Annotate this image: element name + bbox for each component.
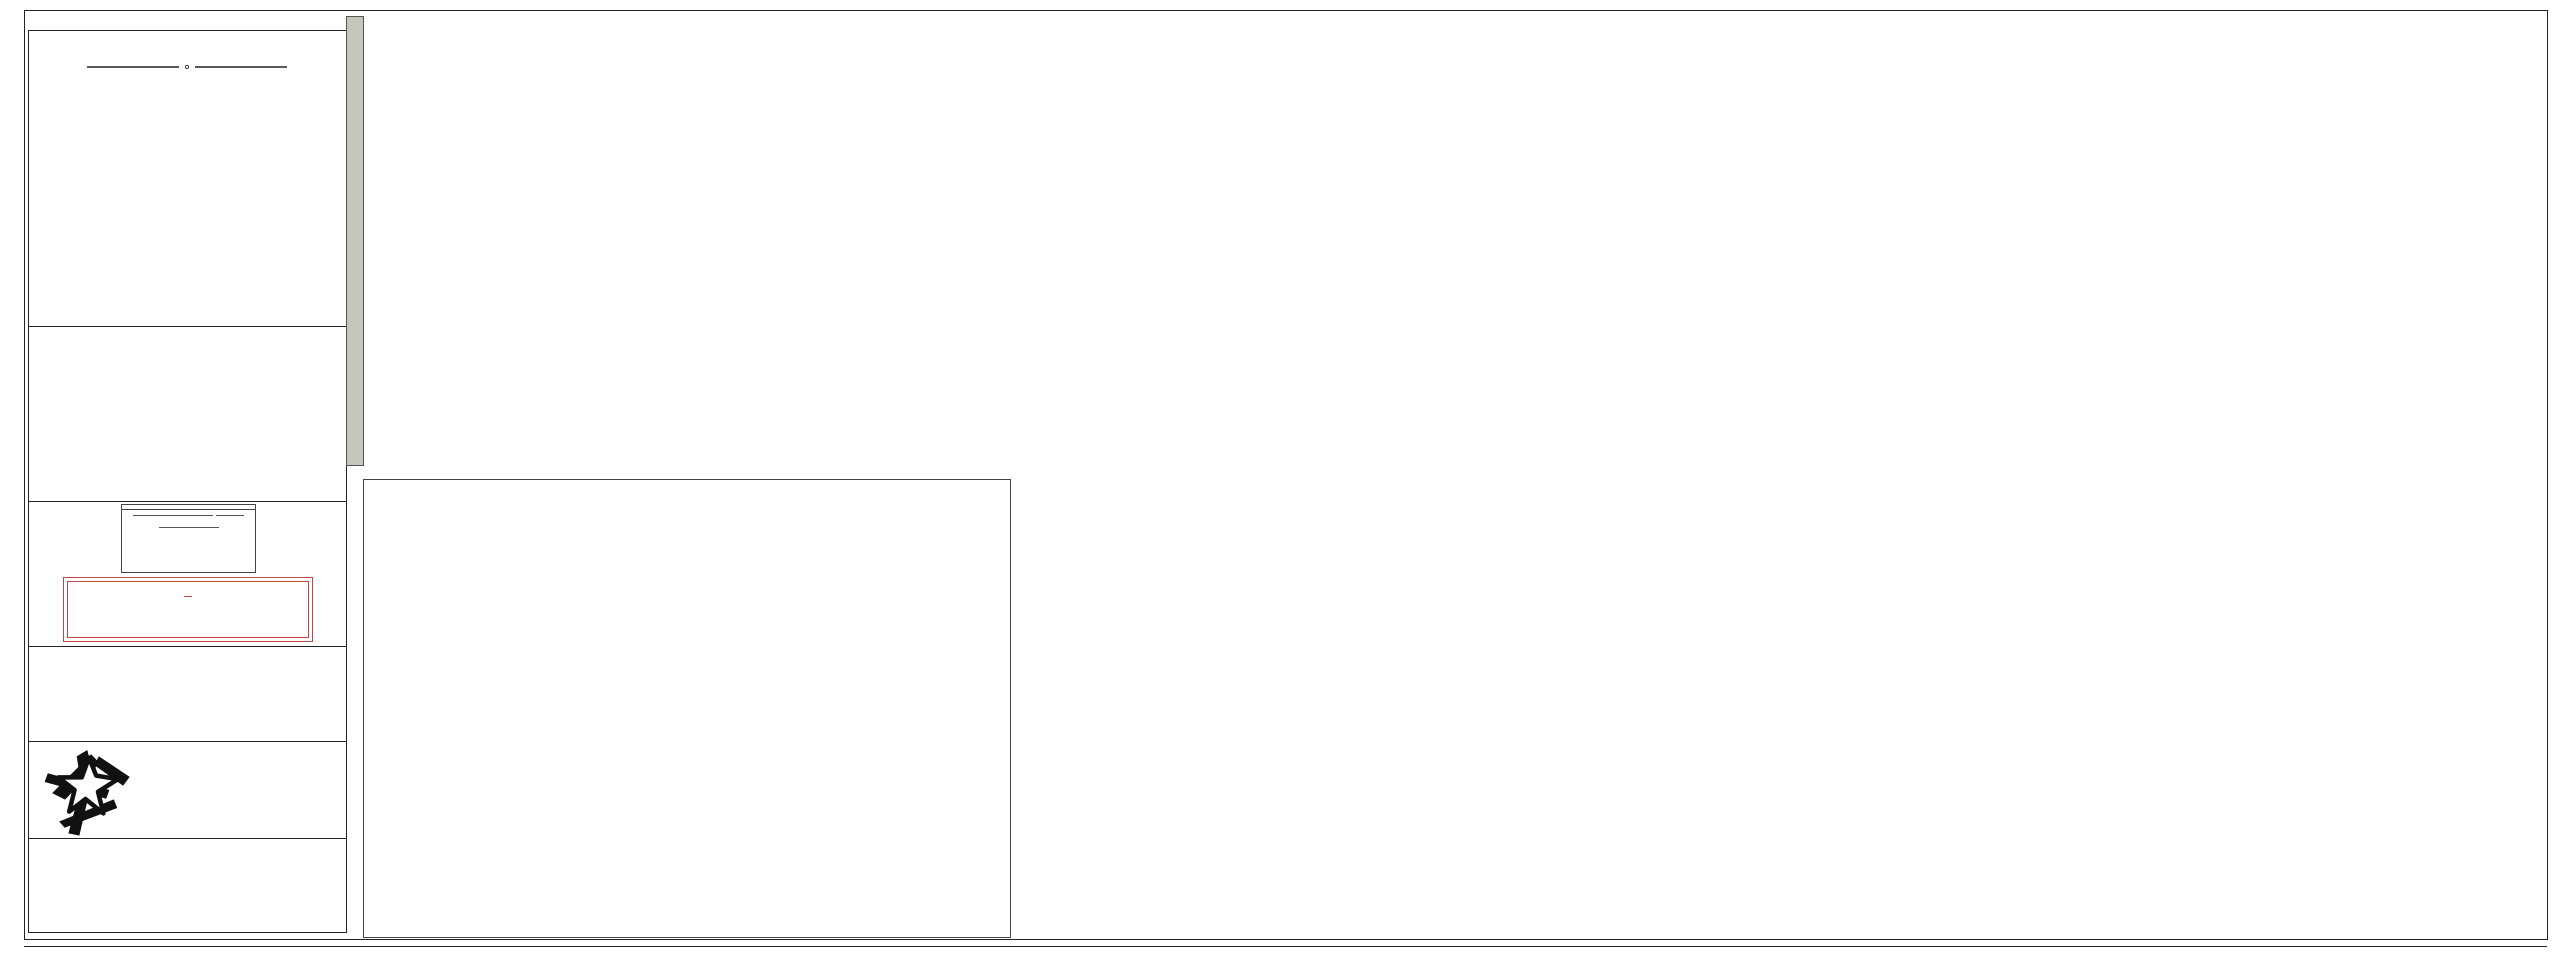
hdr-firm-block [29,838,346,932]
preliminary-word [184,596,192,597]
round-rock-logo-block [29,741,346,838]
round-rock-star-icon [39,743,159,838]
scale-bar [99,295,279,327]
engineer-name [133,515,213,516]
not-a-bidding-document [122,505,255,510]
signature-date [159,527,219,528]
parcel-label-strip [346,16,364,466]
plan-view-map [363,16,963,474]
preliminary-stamp [63,577,313,642]
ornament-divider [87,64,287,70]
alignment-table-ponce [1972,40,2417,460]
typical-sections [1010,30,1450,470]
alignment-table-cr112 [1445,40,1925,920]
profile-chart [348,479,1028,949]
plan-sheet [0,0,2560,960]
title-block-panel [28,30,347,933]
pe-number [216,515,244,516]
vicinity-map [29,328,346,501]
signature-block [121,504,256,573]
